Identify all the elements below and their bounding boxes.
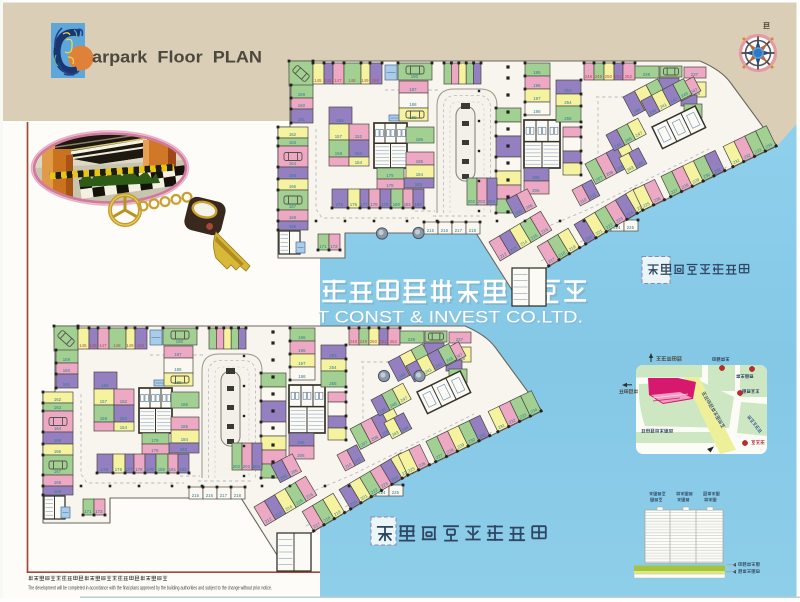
svg-text:252: 252 [625,74,633,79]
svg-text:176: 176 [350,202,358,207]
svg-text:177: 177 [125,467,133,472]
svg-text:179: 179 [151,438,159,443]
svg-text:205: 205 [297,440,305,445]
svg-text:159: 159 [298,92,306,97]
svg-text:150: 150 [372,78,380,83]
svg-text:153: 153 [355,151,363,156]
svg-text:255: 255 [564,116,572,121]
svg-text:The development will be comple: The development will be completed in acc… [28,586,272,592]
svg-text:205: 205 [532,175,540,180]
svg-text:216: 216 [441,228,449,233]
svg-text:184: 184 [181,437,189,442]
svg-text:172: 172 [330,244,338,249]
svg-text:248: 248 [350,339,358,344]
svg-text:152: 152 [355,134,363,139]
svg-text:164: 164 [289,161,297,166]
svg-text:149: 149 [126,343,134,348]
svg-text:171: 171 [84,509,92,514]
svg-text:160: 160 [298,103,306,108]
svg-text:146: 146 [89,343,97,348]
svg-text:154: 154 [120,425,128,430]
svg-text:197: 197 [298,361,306,366]
svg-text:239: 239 [643,72,651,77]
svg-text:148: 148 [113,343,121,348]
svg-text:166: 166 [289,184,297,189]
svg-text:215: 215 [192,493,200,498]
svg-text:253: 253 [329,353,337,358]
svg-text:216: 216 [206,493,214,498]
svg-text:152: 152 [120,399,128,404]
svg-text:197: 197 [533,96,541,101]
svg-text:179: 179 [146,467,154,472]
svg-text:172: 172 [95,509,103,514]
svg-text:249: 249 [595,74,603,79]
svg-text:186: 186 [416,137,424,142]
svg-text:147: 147 [334,78,342,83]
svg-text:181: 181 [169,467,177,472]
svg-text:T CONST & INVEST CO.LTD.: T CONST & INVEST CO.LTD. [317,309,583,327]
svg-text:202: 202 [468,199,476,204]
svg-text:217: 217 [455,228,463,233]
svg-text:178: 178 [151,448,159,453]
svg-text:195: 195 [298,335,306,340]
svg-text:150: 150 [137,343,145,348]
svg-text:163: 163 [54,405,62,410]
svg-text:182: 182 [414,202,422,207]
svg-text:198: 198 [298,374,306,379]
svg-text:178: 178 [135,467,143,472]
svg-text:185: 185 [181,424,189,429]
svg-text:248: 248 [585,74,593,79]
svg-text:206: 206 [297,453,305,458]
svg-text:178: 178 [386,183,394,188]
svg-text:195: 195 [533,70,541,75]
svg-text:175: 175 [336,202,344,207]
svg-text:159: 159 [63,357,71,362]
svg-text:156: 156 [336,118,344,123]
svg-text:169: 169 [289,224,297,229]
svg-text:177: 177 [360,202,368,207]
svg-text:175: 175 [101,467,109,472]
svg-text:162: 162 [289,132,297,137]
svg-text:145: 145 [314,78,322,83]
svg-text:198: 198 [533,109,541,114]
svg-text:218: 218 [469,228,477,233]
svg-text:225: 225 [627,225,635,230]
svg-text:203: 203 [478,199,486,204]
svg-text:169: 169 [54,489,62,494]
svg-text:252: 252 [390,339,398,344]
svg-text:182: 182 [179,467,187,472]
svg-text:186: 186 [181,402,189,407]
svg-text:154: 154 [355,160,363,165]
svg-text:153: 153 [120,416,128,421]
svg-text:158: 158 [100,416,108,421]
svg-text:249: 249 [360,339,368,344]
svg-text:178: 178 [370,202,378,207]
svg-text:158: 158 [335,151,343,156]
svg-text:165: 165 [54,438,62,443]
svg-text:218: 218 [234,493,242,498]
svg-text:161: 161 [298,117,306,122]
svg-text:185: 185 [416,159,424,164]
svg-text:255: 255 [329,381,337,386]
svg-text:217: 217 [220,493,228,498]
svg-text:183: 183 [180,447,188,452]
svg-text:147: 147 [99,343,107,348]
svg-text:149: 149 [361,78,369,83]
svg-text:239: 239 [408,337,416,342]
svg-text:164: 164 [54,426,62,431]
svg-text:250: 250 [605,74,613,79]
svg-text:237: 237 [691,72,699,77]
svg-text:180: 180 [393,202,401,207]
svg-text:arpark Floor PLAN: arpark Floor PLAN [92,49,262,67]
svg-text:204: 204 [253,464,261,469]
svg-text:145: 145 [79,343,87,348]
svg-text:156: 156 [101,383,109,388]
svg-text:196: 196 [298,348,306,353]
svg-text:184: 184 [416,172,424,177]
svg-text:179: 179 [386,173,394,178]
svg-text:254: 254 [329,365,337,370]
svg-text:163: 163 [289,140,297,145]
svg-text:187: 187 [409,87,417,92]
svg-text:171: 171 [319,244,327,249]
svg-text:157: 157 [100,399,108,404]
svg-text:179: 179 [381,202,389,207]
svg-text:215: 215 [427,228,435,233]
svg-text:167: 167 [54,469,62,474]
svg-text:250: 250 [370,339,378,344]
svg-text:190: 190 [176,339,184,344]
svg-text:167: 167 [289,204,297,209]
svg-text:188: 188 [174,367,182,372]
svg-text:206: 206 [532,188,540,193]
svg-text:157: 157 [335,134,343,139]
svg-text:181: 181 [404,202,412,207]
svg-text:225: 225 [392,490,400,495]
svg-text:168: 168 [289,215,297,220]
svg-text:165: 165 [289,173,297,178]
svg-text:254: 254 [564,100,572,105]
svg-text:146: 146 [324,78,332,83]
svg-text:162: 162 [54,397,62,402]
svg-text:148: 148 [348,78,356,83]
svg-text:251: 251 [614,74,622,79]
svg-text:237: 237 [456,337,464,342]
svg-text:161: 161 [63,382,71,387]
svg-text:196: 196 [533,83,541,88]
svg-text:168: 168 [54,480,62,485]
svg-text:204: 204 [488,199,496,204]
svg-text:176: 176 [115,467,123,472]
svg-text:253: 253 [564,88,572,93]
svg-text:203: 203 [243,464,251,469]
svg-text:202: 202 [233,464,241,469]
svg-text:187: 187 [174,352,182,357]
svg-text:166: 166 [54,449,62,454]
svg-text:251: 251 [379,339,387,344]
svg-text:160: 160 [63,368,71,373]
svg-text:190: 190 [411,74,419,79]
svg-text:183: 183 [415,182,423,187]
svg-text:180: 180 [158,467,166,472]
svg-text:188: 188 [409,102,417,107]
